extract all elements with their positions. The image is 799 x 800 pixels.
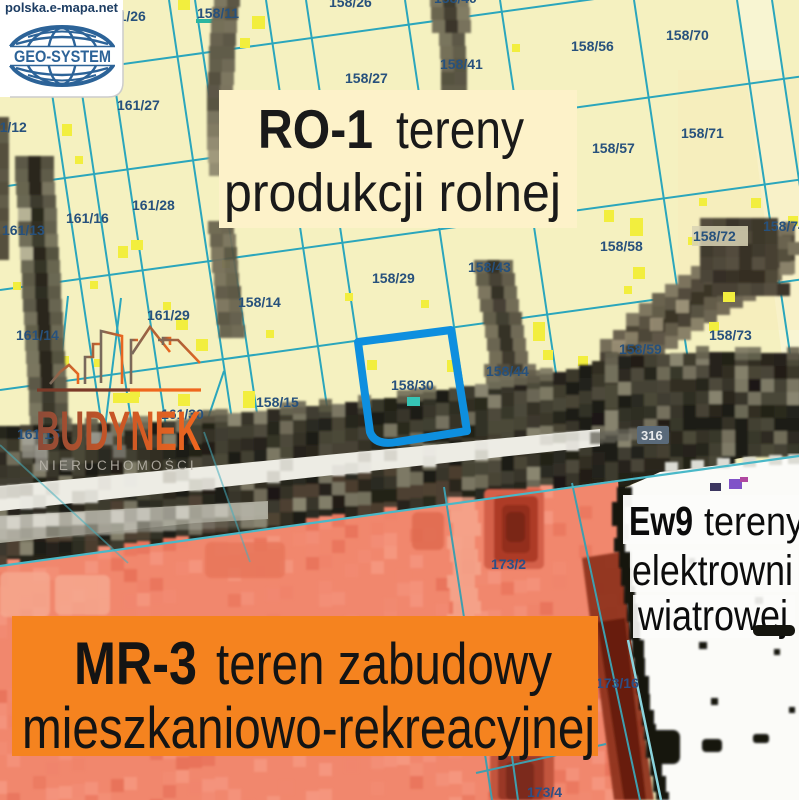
svg-text:elektrowni: elektrowni — [632, 547, 793, 595]
svg-text:158/15: 158/15 — [256, 394, 299, 410]
svg-text:161/29: 161/29 — [147, 307, 190, 323]
svg-text:NIERUCHOMOŚCI: NIERUCHOMOŚCI — [39, 458, 197, 473]
svg-text:161/14: 161/14 — [16, 327, 59, 343]
svg-text:158/71: 158/71 — [681, 125, 724, 141]
svg-text:polska.e-mapa.net: polska.e-mapa.net — [5, 0, 119, 15]
svg-text:BUDYNEK: BUDYNEK — [36, 399, 201, 462]
svg-text:161/16: 161/16 — [66, 210, 109, 226]
svg-text:teren zabudowy: teren zabudowy — [216, 632, 552, 697]
svg-text:GEO-SYSTEM: GEO-SYSTEM — [14, 48, 111, 66]
svg-text:161/13: 161/13 — [2, 222, 45, 238]
svg-text:161/27: 161/27 — [117, 97, 160, 113]
svg-text:158/58: 158/58 — [600, 238, 643, 254]
svg-text:158/72: 158/72 — [693, 228, 736, 244]
svg-text:158/11: 158/11 — [197, 5, 239, 21]
svg-text:Ew9: Ew9 — [629, 498, 693, 544]
svg-text:158/56: 158/56 — [571, 38, 614, 54]
svg-text:tereny: tereny — [396, 100, 524, 160]
svg-text:158/30: 158/30 — [391, 377, 434, 393]
svg-text:158/74: 158/74 — [763, 218, 799, 234]
svg-text:158/44: 158/44 — [486, 363, 529, 379]
svg-text:161/28: 161/28 — [132, 197, 175, 213]
svg-text:173/4: 173/4 — [527, 784, 562, 800]
svg-text:158/57: 158/57 — [592, 140, 635, 156]
svg-text:mieszkaniowo-rekreacyjnej: mieszkaniowo-rekreacyjnej — [22, 696, 595, 761]
svg-text:161/12: 161/12 — [0, 119, 27, 135]
svg-text:MR-3: MR-3 — [74, 630, 197, 697]
svg-text:158/26: 158/26 — [329, 0, 372, 10]
svg-text:158/27: 158/27 — [345, 70, 388, 86]
svg-text:173/16: 173/16 — [596, 675, 639, 691]
svg-text:tereny: tereny — [704, 500, 799, 544]
svg-text:316: 316 — [641, 428, 663, 443]
svg-text:158/29: 158/29 — [372, 270, 415, 286]
svg-text:158/59: 158/59 — [619, 341, 662, 357]
svg-text:158/40: 158/40 — [434, 0, 477, 6]
svg-text:158/14: 158/14 — [238, 294, 281, 310]
svg-text:158/41: 158/41 — [440, 56, 483, 72]
svg-text:RO-1: RO-1 — [258, 98, 373, 160]
svg-text:173/2: 173/2 — [491, 556, 526, 572]
svg-text:158/73: 158/73 — [709, 327, 752, 343]
svg-text:158/43: 158/43 — [468, 259, 511, 275]
svg-text:158/70: 158/70 — [666, 27, 709, 43]
svg-text:produkcji rolnej: produkcji rolnej — [224, 163, 561, 223]
